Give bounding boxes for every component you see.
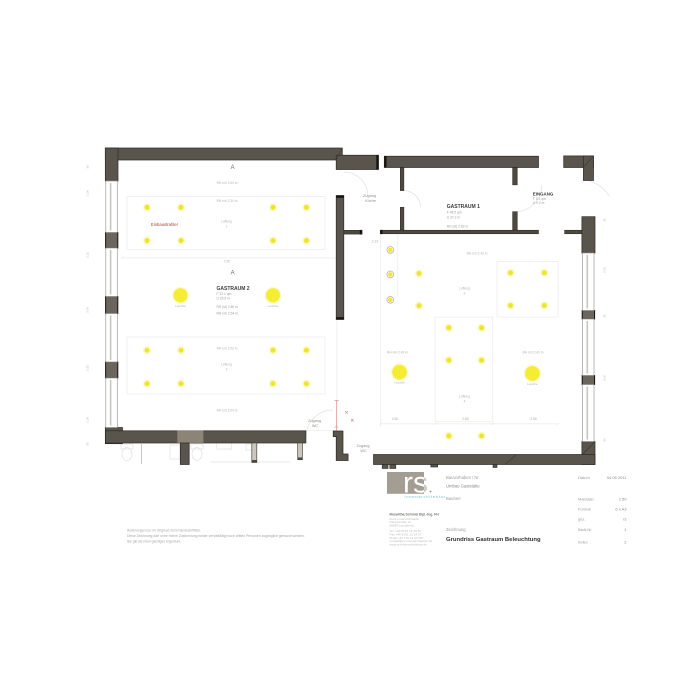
svg-text:GASTRAUM 1: GASTRAUM 1 bbox=[447, 204, 480, 210]
svg-text:Umbau Gaststätte: Umbau Gaststätte bbox=[446, 484, 480, 489]
svg-text:30: 30 bbox=[603, 314, 607, 318]
svg-text:Leuchte: Leuchte bbox=[394, 381, 405, 385]
svg-text:4.00: 4.00 bbox=[603, 375, 607, 381]
svg-text:WC: WC bbox=[360, 449, 367, 453]
svg-text:A: A bbox=[231, 165, 235, 171]
svg-text:RH roh 2.64 m: RH roh 2.64 m bbox=[217, 181, 238, 185]
svg-text:30: 30 bbox=[603, 438, 607, 442]
svg-text:Zugang: Zugang bbox=[362, 194, 377, 198]
svg-text:7.20: 7.20 bbox=[224, 260, 231, 264]
svg-text:Lüftung: Lüftung bbox=[459, 395, 470, 399]
svg-text:2.12: 2.12 bbox=[372, 239, 379, 243]
svg-text:2.50: 2.50 bbox=[462, 417, 469, 421]
svg-text:30: 30 bbox=[603, 218, 607, 222]
svg-text:Küche: Küche bbox=[365, 199, 376, 203]
svg-text:1:50: 1:50 bbox=[619, 496, 628, 501]
svg-text:Zugang: Zugang bbox=[308, 419, 321, 423]
svg-text:Maßstab: Maßstab bbox=[578, 496, 594, 501]
svg-text:Lüftung: Lüftung bbox=[221, 220, 232, 224]
svg-text:Datum: Datum bbox=[578, 475, 590, 480]
svg-text:Lüftung: Lüftung bbox=[221, 363, 232, 367]
svg-text:2.00: 2.00 bbox=[603, 267, 607, 273]
svg-text:Bauherr: Bauherr bbox=[446, 496, 462, 501]
svg-text:gez.: gez. bbox=[578, 516, 586, 521]
svg-text:RH roh 2.34 m: RH roh 2.34 m bbox=[217, 199, 238, 203]
svg-text:Leuchte: Leuchte bbox=[175, 304, 186, 308]
svg-text:RH roh 2.53 m: RH roh 2.53 m bbox=[217, 347, 238, 351]
svg-text:6 x A3: 6 x A3 bbox=[615, 506, 627, 511]
svg-text:30: 30 bbox=[86, 165, 90, 169]
svg-text:30: 30 bbox=[86, 442, 90, 446]
svg-text:2: 2 bbox=[226, 368, 228, 372]
svg-text:F 22.1 qm: F 22.1 qm bbox=[217, 292, 232, 296]
svg-text:RH roh 2.64 m: RH roh 2.64 m bbox=[217, 409, 238, 413]
svg-text:rs: rs bbox=[623, 516, 626, 521]
svg-text:3: 3 bbox=[464, 292, 466, 296]
svg-text:U 37.2 m: U 37.2 m bbox=[447, 216, 461, 220]
svg-text:2.50: 2.50 bbox=[530, 417, 537, 421]
svg-text:Bauvorhaben / Nr.: Bauvorhaben / Nr. bbox=[446, 475, 480, 480]
svg-text:RH roh 2.43 m: RH roh 2.43 m bbox=[467, 252, 488, 256]
svg-text:U 9.2 m: U 9.2 m bbox=[533, 201, 545, 205]
svg-text:Diese Zeichnung darf ohne mein: Diese Zeichnung darf ohne meine Zustimmu… bbox=[127, 534, 305, 538]
svg-text:U 25.5 m: U 25.5 m bbox=[217, 297, 231, 301]
svg-text:86899 Landsberg: 86899 Landsberg bbox=[390, 524, 414, 528]
svg-text:Einbaustrahler: Einbaustrahler bbox=[151, 222, 179, 227]
svg-text:04.05.2011: 04.05.2011 bbox=[607, 475, 627, 480]
svg-text:1.06: 1.06 bbox=[86, 417, 90, 423]
svg-text:EINGANG: EINGANG bbox=[533, 192, 554, 197]
svg-text:2.50: 2.50 bbox=[392, 417, 399, 421]
svg-text:RH (st) 2.80 m: RH (st) 2.80 m bbox=[217, 305, 239, 309]
svg-text:Leuchte: Leuchte bbox=[527, 382, 538, 386]
svg-text:RH (st) 2.82 m: RH (st) 2.82 m bbox=[447, 224, 469, 228]
svg-text:A: A bbox=[231, 271, 235, 277]
svg-text:Lüftung: Lüftung bbox=[459, 287, 470, 291]
svg-text:Änderungen nur im Original; ni: Änderungen nur im Original; nicht handsc… bbox=[127, 529, 201, 533]
svg-text:Grundriss Gastraum Beleuchtung: Grundriss Gastraum Beleuchtung bbox=[446, 537, 541, 543]
svg-text:WC: WC bbox=[312, 424, 319, 428]
svg-text:Leuchte: Leuchte bbox=[268, 304, 279, 308]
svg-text:2.10: 2.10 bbox=[86, 252, 90, 258]
svg-text:RH roh 2.64 m: RH roh 2.64 m bbox=[217, 312, 239, 316]
svg-text:Zeichnung: Zeichnung bbox=[446, 527, 466, 532]
svg-text:Blatt-Nr: Blatt-Nr bbox=[578, 527, 592, 532]
svg-text:2.92: 2.92 bbox=[86, 365, 90, 371]
svg-text:Sie gilt als mein geistiges Ei: Sie gilt als mein geistiges Eigentum. bbox=[127, 540, 181, 544]
svg-text:3.76: 3.76 bbox=[86, 307, 90, 313]
svg-text:innenarchitektur: innenarchitektur bbox=[405, 494, 446, 499]
svg-text:Format: Format bbox=[578, 506, 592, 511]
svg-text:Index: Index bbox=[578, 540, 588, 545]
svg-text:1.06: 1.06 bbox=[86, 190, 90, 196]
svg-text:1: 1 bbox=[226, 225, 228, 229]
svg-text:Zugang: Zugang bbox=[357, 444, 370, 448]
svg-text:4: 4 bbox=[464, 400, 466, 404]
svg-text:GASTRAUM 2: GASTRAUM 2 bbox=[217, 286, 250, 292]
svg-text:F 48.5 qm: F 48.5 qm bbox=[447, 211, 462, 215]
svg-text:www.rs-innenarchitektur.de: www.rs-innenarchitektur.de bbox=[390, 543, 427, 547]
svg-text:RH roh 2.43 m: RH roh 2.43 m bbox=[523, 351, 544, 355]
svg-text:RH roh 2.43 m: RH roh 2.43 m bbox=[387, 351, 408, 355]
